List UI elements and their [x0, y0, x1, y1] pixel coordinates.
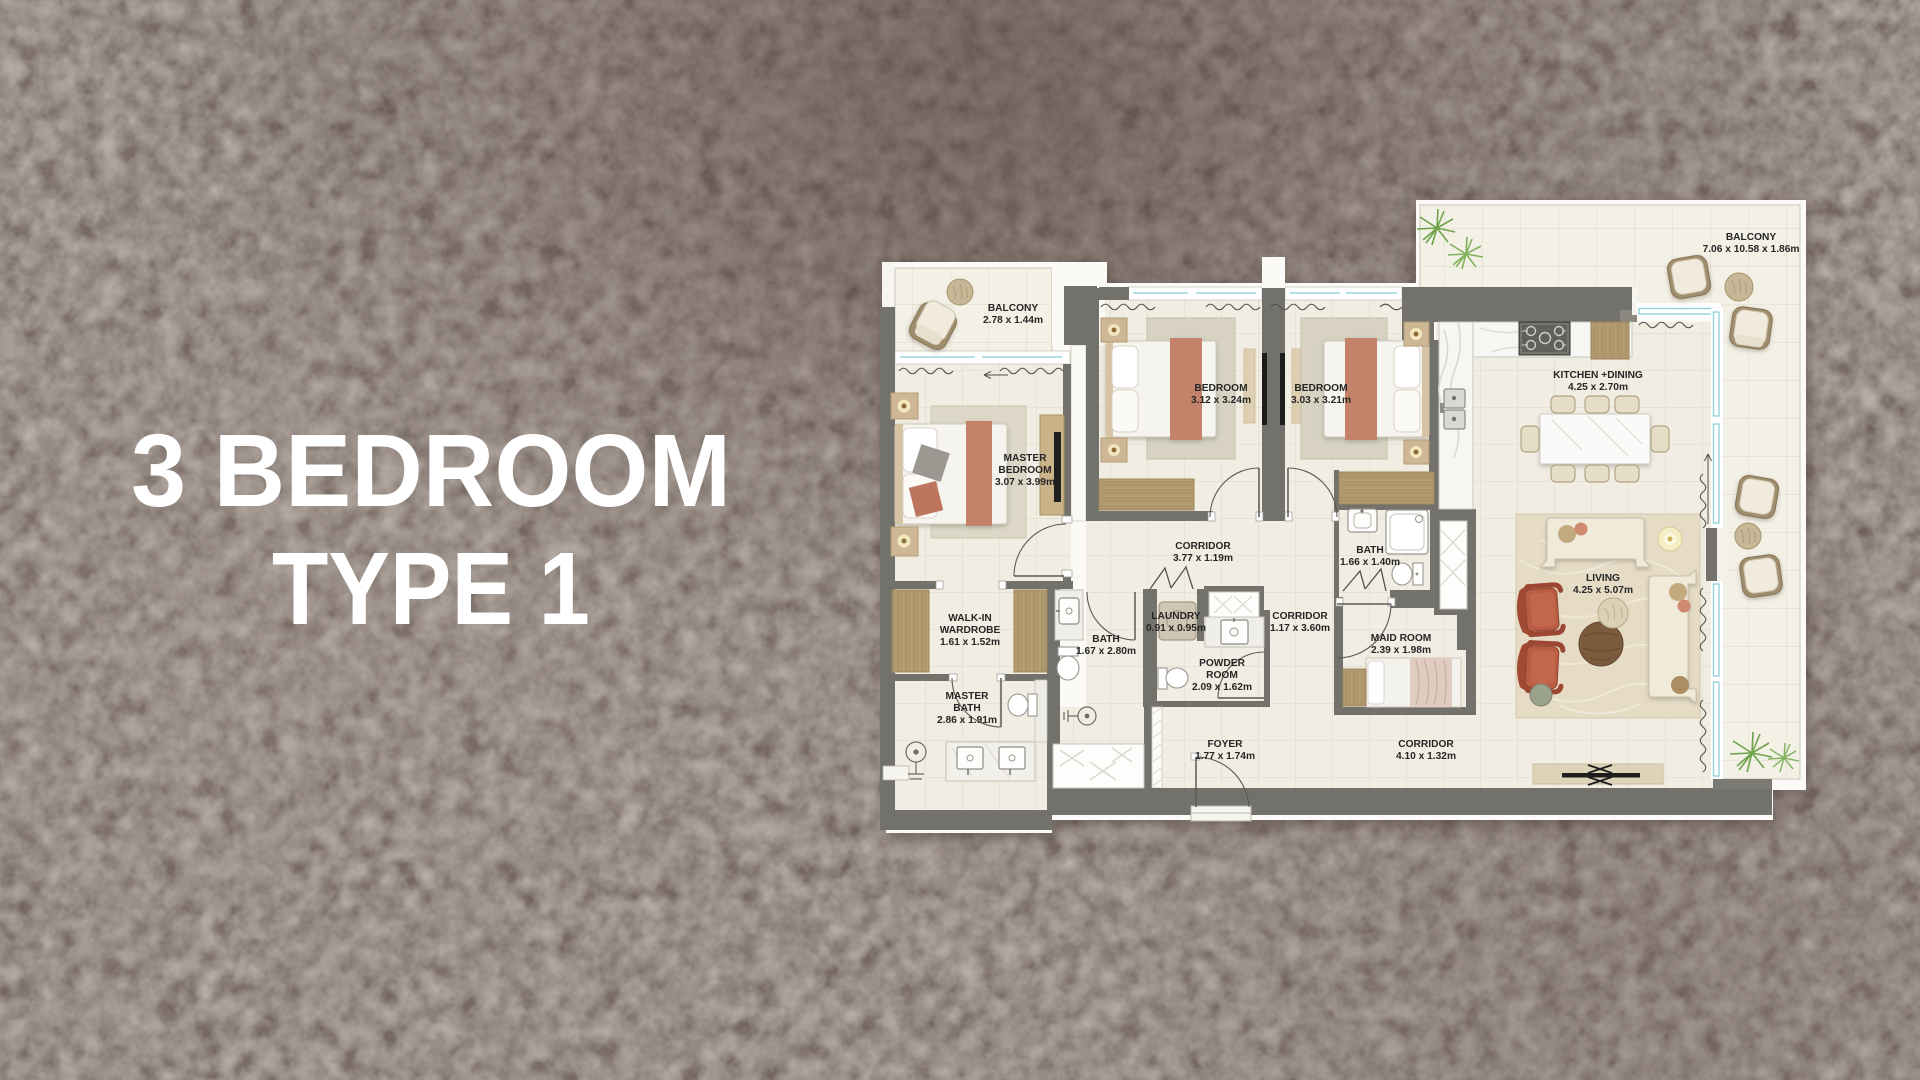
svg-text:KITCHEN +DINING: KITCHEN +DINING	[1553, 370, 1643, 381]
svg-text:BEDROOM: BEDROOM	[1194, 383, 1247, 394]
svg-text:2.86 x 1.91m: 2.86 x 1.91m	[937, 715, 997, 726]
svg-text:7.06 x 10.58 x 1.86m: 7.06 x 10.58 x 1.86m	[1703, 244, 1800, 255]
svg-text:BEDROOM: BEDROOM	[998, 465, 1051, 476]
svg-text:FOYER: FOYER	[1207, 739, 1243, 750]
svg-text:4.25 x 5.07m: 4.25 x 5.07m	[1573, 585, 1633, 596]
svg-text:2.39 x 1.98m: 2.39 x 1.98m	[1371, 645, 1431, 656]
svg-text:CORRIDOR: CORRIDOR	[1398, 739, 1454, 750]
svg-text:MAID ROOM: MAID ROOM	[1371, 633, 1432, 644]
svg-text:BATH: BATH	[953, 703, 981, 714]
svg-text:LAUNDRY: LAUNDRY	[1151, 611, 1201, 622]
svg-text:MASTER: MASTER	[945, 691, 989, 702]
svg-text:1.66 x 1.40m: 1.66 x 1.40m	[1340, 557, 1400, 568]
svg-text:CORRIDOR: CORRIDOR	[1272, 611, 1328, 622]
svg-text:MASTER: MASTER	[1003, 453, 1047, 464]
svg-text:3 BEDROOM: 3 BEDROOM	[131, 413, 731, 528]
svg-text:4.10 x 1.32m: 4.10 x 1.32m	[1396, 751, 1456, 762]
svg-text:WARDROBE: WARDROBE	[940, 625, 1001, 636]
svg-text:BEDROOM: BEDROOM	[1294, 383, 1347, 394]
svg-text:3.03 x 3.21m: 3.03 x 3.21m	[1291, 395, 1351, 406]
svg-text:ROOM: ROOM	[1206, 670, 1238, 681]
svg-text:BATH: BATH	[1356, 545, 1384, 556]
svg-text:0.91 x 0.95m: 0.91 x 0.95m	[1146, 623, 1206, 634]
svg-text:3.07 x 3.99m: 3.07 x 3.99m	[995, 477, 1055, 488]
svg-text:2.78 x 1.44m: 2.78 x 1.44m	[983, 315, 1043, 326]
svg-text:3.77 x 1.19m: 3.77 x 1.19m	[1173, 553, 1233, 564]
svg-text:1.17 x 3.60m: 1.17 x 3.60m	[1270, 623, 1330, 634]
svg-text:BATH: BATH	[1092, 634, 1120, 645]
svg-text:POWDER: POWDER	[1199, 658, 1245, 669]
svg-text:3.12 x 3.24m: 3.12 x 3.24m	[1191, 395, 1251, 406]
svg-text:2.09 x 1.62m: 2.09 x 1.62m	[1192, 682, 1252, 693]
svg-text:BALCONY: BALCONY	[988, 303, 1039, 314]
svg-text:WALK-IN: WALK-IN	[948, 613, 992, 624]
svg-text:BALCONY: BALCONY	[1726, 232, 1777, 243]
svg-text:4.25 x 2.70m: 4.25 x 2.70m	[1568, 382, 1628, 393]
svg-text:1.77 x 1.74m: 1.77 x 1.74m	[1195, 751, 1255, 762]
svg-text:TYPE 1: TYPE 1	[272, 531, 590, 646]
svg-text:1.67 x 2.80m: 1.67 x 2.80m	[1076, 646, 1136, 657]
svg-text:CORRIDOR: CORRIDOR	[1175, 541, 1231, 552]
svg-text:1.61 x 1.52m: 1.61 x 1.52m	[940, 637, 1000, 648]
svg-text:LIVING: LIVING	[1586, 573, 1620, 584]
